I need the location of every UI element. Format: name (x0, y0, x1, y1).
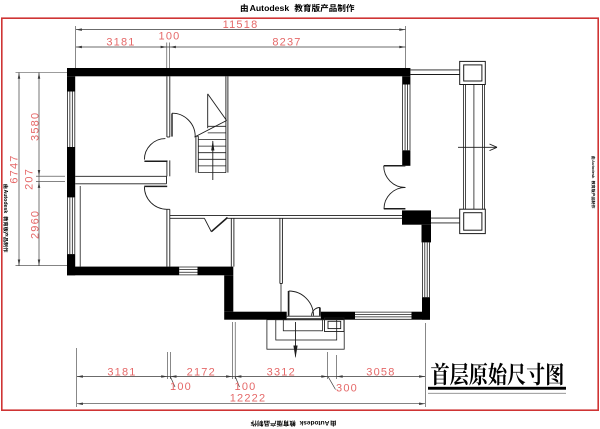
svg-text:3181: 3181 (106, 37, 135, 49)
svg-text:3181: 3181 (107, 366, 136, 378)
svg-text:Autodesk: Autodesk (591, 160, 596, 179)
svg-text:3312: 3312 (267, 366, 296, 378)
svg-text:11518: 11518 (223, 19, 259, 31)
svg-text:207: 207 (24, 168, 36, 190)
svg-text:6747: 6747 (9, 154, 21, 183)
svg-text:3580: 3580 (29, 112, 41, 141)
svg-text:12222: 12222 (230, 392, 267, 404)
svg-text:2172: 2172 (187, 366, 216, 378)
svg-text:2960: 2960 (30, 210, 42, 239)
svg-text:Autodesk: Autodesk (250, 3, 290, 13)
svg-text:3058: 3058 (366, 366, 395, 378)
svg-text:300: 300 (336, 382, 358, 394)
svg-text:100: 100 (170, 381, 192, 393)
svg-text:Autodesk: Autodesk (299, 419, 329, 426)
svg-text:100: 100 (159, 31, 181, 43)
svg-text:8237: 8237 (272, 37, 301, 49)
svg-text:100: 100 (235, 381, 257, 393)
svg-text:Autodesk: Autodesk (2, 189, 8, 213)
